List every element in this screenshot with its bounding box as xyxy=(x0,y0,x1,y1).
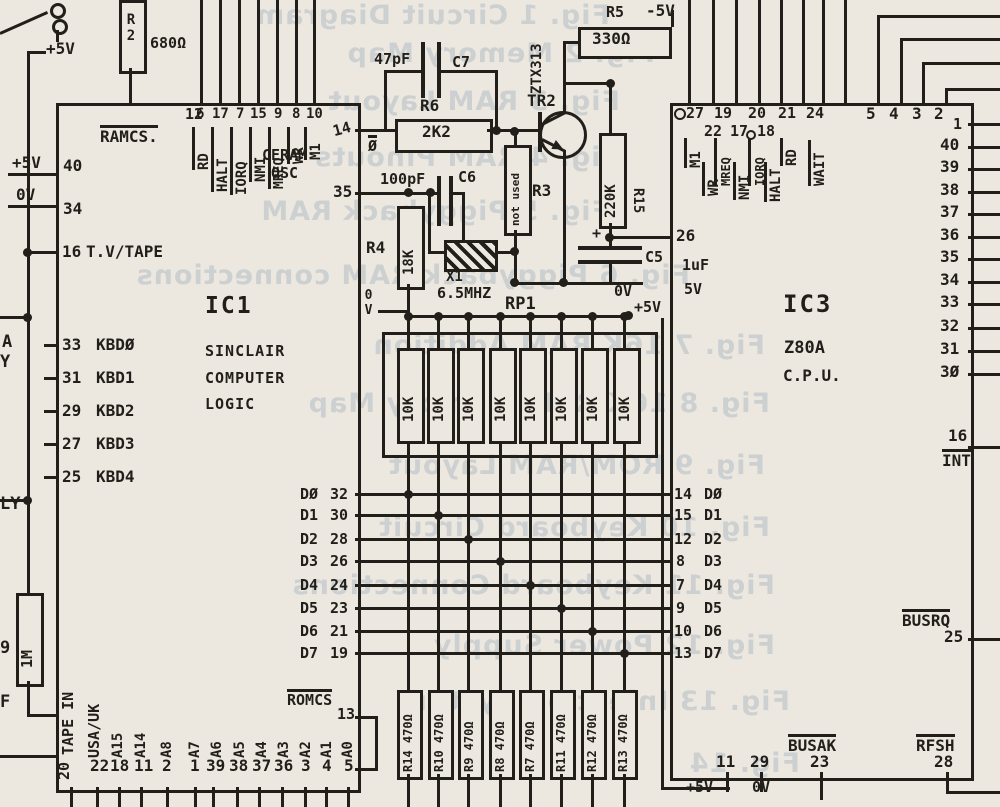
ic3-plus5v: +5V xyxy=(686,780,713,796)
ic1-dbus-label: D2 xyxy=(300,532,318,548)
ic3-dbus-pin: 10 xyxy=(674,624,692,640)
ic1-ceram-label: CERAM xyxy=(262,148,307,164)
pin-stub xyxy=(820,772,823,800)
wire xyxy=(563,150,566,285)
ic1-pin40: 40 xyxy=(63,158,82,175)
crystal-x1 xyxy=(444,240,498,272)
junction-dot xyxy=(464,312,473,321)
ic3-ctrl-pin: 27 xyxy=(686,106,704,122)
pin-tick xyxy=(968,446,1000,449)
ic1-0v: 0V xyxy=(16,187,35,204)
pin-tick xyxy=(968,236,1000,239)
bank-resistor-label: R8 470Ω xyxy=(492,694,508,772)
ic1-addr-pin: 18 xyxy=(110,758,129,775)
c6-label: C6 xyxy=(458,170,476,186)
pin-stub xyxy=(560,774,563,807)
ic1-addr-pin: 11 xyxy=(134,758,153,775)
pin-tick xyxy=(968,213,1000,216)
ic3-dbus-label: D2 xyxy=(704,532,722,548)
pin-stub xyxy=(347,787,350,807)
wire xyxy=(428,192,431,254)
wire xyxy=(355,192,437,195)
rp1-value: 10K xyxy=(431,370,447,422)
wire xyxy=(0,11,48,35)
ic1-pin: 15 xyxy=(250,107,267,122)
pin-stub xyxy=(467,774,470,807)
switch-terminal xyxy=(52,19,68,35)
ic1-usauk-label: USA/UK xyxy=(86,678,102,758)
ic3-pin29: 29 xyxy=(750,754,769,771)
bank-resistor-label: R12 470Ω xyxy=(584,694,600,772)
ic3-pin25: 25 xyxy=(944,629,963,646)
ic1-addr-pin: 36 xyxy=(274,758,293,775)
junction-dot xyxy=(526,312,535,321)
rail-plus5v: +5V xyxy=(634,300,661,316)
wire xyxy=(946,791,1000,794)
ic1-dbus-label: D3 xyxy=(300,554,318,570)
wire xyxy=(8,173,56,176)
bank-resistor-label: R14 470Ω xyxy=(400,694,416,772)
wire xyxy=(355,768,378,771)
ic1-dbus-pin: 19 xyxy=(330,646,348,662)
wire xyxy=(780,0,783,103)
wire xyxy=(27,51,30,593)
ic3-dbus-pin: 8 xyxy=(676,554,685,570)
ic1-dbus-label: DØ xyxy=(300,487,318,503)
wire xyxy=(563,41,578,44)
wire xyxy=(609,236,670,239)
ic3-dbus-label: D4 xyxy=(704,578,722,594)
ic1-pin: 10 xyxy=(306,107,323,122)
dbus-line xyxy=(355,630,670,633)
ic1-kbd-pin: 33 xyxy=(62,337,81,354)
ic3-dbus-label: DØ xyxy=(704,487,722,503)
wire xyxy=(8,205,56,208)
ic1-dbus-pin: 24 xyxy=(330,578,348,594)
ic3-addr-pin: 5 xyxy=(866,106,876,123)
pin-stub xyxy=(258,787,261,807)
rp1-value: 10K xyxy=(461,370,477,422)
c6-value: 100pF xyxy=(380,172,425,188)
ic1-dbus-label: D7 xyxy=(300,646,318,662)
cut-label: F xyxy=(0,694,10,712)
capacitor-plate xyxy=(421,42,425,98)
wire xyxy=(514,230,517,285)
wire xyxy=(822,0,825,103)
pin-stub xyxy=(236,787,239,807)
pin-stub xyxy=(70,787,73,807)
pin-stub xyxy=(96,787,99,807)
ic3-cpu: C.P.U. xyxy=(783,368,841,385)
ic1-dbus-label: D6 xyxy=(300,624,318,640)
wire xyxy=(219,0,222,103)
bank-resistor-label: R11 470Ω xyxy=(553,694,569,772)
c5-voltage: 5V xyxy=(684,282,702,298)
rp1-value: 10K xyxy=(585,370,601,422)
pin-stub xyxy=(591,774,594,807)
pin-tick xyxy=(44,476,56,479)
bank-resistor-label: R7 470Ω xyxy=(522,694,538,772)
junction-dot xyxy=(496,312,505,321)
ic1-tape-pin: 20 xyxy=(56,752,72,780)
wire xyxy=(900,38,1000,41)
pin-tick xyxy=(968,146,1000,149)
ic1-signal-label: RD xyxy=(192,127,212,170)
wire xyxy=(0,316,28,319)
schematic-canvas: Fig. 1 Circuit Diagram Fig. 2 Memory Map… xyxy=(0,0,1000,807)
resistor-r4-label: R4 xyxy=(366,240,385,257)
resistor-r5-label: R5 xyxy=(606,5,624,21)
ic3-addr-pin: 2 xyxy=(934,106,944,123)
ic3-addr-side-pin: 40 xyxy=(940,137,959,154)
x1-value: 6.5MHZ xyxy=(437,286,491,302)
wire xyxy=(758,0,761,103)
ic3-dbus-label: D5 xyxy=(704,601,722,617)
ic1-kbd-label: KBD3 xyxy=(96,436,135,453)
ic1-pin: 9 xyxy=(274,107,282,122)
ic3-ctrl-label: HALT xyxy=(764,162,784,202)
ic1-dbus-pin: 30 xyxy=(330,508,348,524)
ic1-addr-label: A4 xyxy=(254,712,270,758)
junction-dot xyxy=(510,247,519,256)
capacitor-plate xyxy=(578,246,642,250)
wire xyxy=(462,192,465,240)
resistor-r6-value: 2K2 xyxy=(422,124,451,141)
wire xyxy=(900,38,903,103)
ic1-kbd-pin: 29 xyxy=(62,403,81,420)
junction-dot xyxy=(620,312,629,321)
c5-plus: + xyxy=(592,226,601,242)
pin-stub xyxy=(212,787,215,807)
junction-dot xyxy=(588,627,597,636)
ic1-addr-label: A1 xyxy=(319,712,335,758)
junction-dot xyxy=(510,127,519,136)
resistor-r4-value: 18K xyxy=(401,215,417,275)
pin-stub xyxy=(407,774,410,807)
ic3-dbus-pin: 15 xyxy=(674,508,692,524)
ic3-ctrl-pin: 24 xyxy=(806,106,824,122)
dbus-line xyxy=(355,493,670,496)
ic1-dbus-pin: 28 xyxy=(330,532,348,548)
pin-stub xyxy=(726,772,729,792)
ic3-ctrl-pin: 21 xyxy=(778,106,796,122)
c5-value: 1uF xyxy=(682,258,709,274)
bus-column xyxy=(661,318,664,790)
ic3-addr-side-pin: 36 xyxy=(940,227,959,244)
ic1-tvtape-label: T.V/TAPE xyxy=(86,244,163,261)
ic3-dbus-pin: 12 xyxy=(674,532,692,548)
ic1-usa-pin: 22 xyxy=(90,758,109,775)
pin-tick xyxy=(968,373,1000,376)
ic3-ctrl-label: MREQ xyxy=(714,138,734,186)
ic1-addr-pin: 3 xyxy=(301,758,311,775)
tr2-label: TR2 xyxy=(527,93,556,110)
minus5v-label: -5V xyxy=(646,3,675,20)
ic1-addr-label: A8 xyxy=(159,712,175,758)
wire xyxy=(495,70,498,132)
dbus-line xyxy=(355,560,670,563)
rp1-value: 10K xyxy=(554,370,570,422)
capacitor-plate xyxy=(437,176,441,226)
pin-tick xyxy=(968,303,1000,306)
resistor-r15-value: 220K xyxy=(603,140,619,218)
ic3-type: Z80A xyxy=(784,340,825,358)
ic1-signal-label: HALT xyxy=(211,127,231,192)
ic1-addr-label: A15 xyxy=(110,712,126,758)
pin-tick xyxy=(968,191,1000,194)
wire xyxy=(28,251,58,254)
ic1-addr-pin: 37 xyxy=(252,758,271,775)
ic3-0v: 0V xyxy=(752,780,770,796)
ic3-addr-side-pin: 33 xyxy=(940,294,959,311)
cut-label: 9 xyxy=(0,640,10,658)
ic3-addr-side-pin: 31 xyxy=(940,341,959,358)
ic1-kbd-pin: 31 xyxy=(62,370,81,387)
pin-stub xyxy=(281,787,284,807)
rp1-value: 10K xyxy=(523,370,539,422)
switch-terminal xyxy=(50,3,66,19)
ic1-addr-pin: 2 xyxy=(162,758,172,775)
wire xyxy=(563,41,566,113)
pin-tick xyxy=(968,168,1000,171)
ic1-addr-label: A14 xyxy=(133,712,149,758)
ic3-dbus-pin: 9 xyxy=(676,601,685,617)
pin-stub xyxy=(529,774,532,807)
wire xyxy=(384,70,387,130)
ic1-desc: LOGIC xyxy=(205,397,255,413)
ic3-dbus-label: D7 xyxy=(704,646,722,662)
ic1-dbus-pin: 21 xyxy=(330,624,348,640)
ic1-tapein-label: TAPE IN xyxy=(60,663,76,755)
ic1-pin35: 35 xyxy=(333,184,352,201)
junction-dot xyxy=(510,278,519,287)
pin-stub xyxy=(166,787,169,807)
pin-stub xyxy=(623,774,626,807)
wire xyxy=(295,0,298,103)
ic3-addr-side-pin: 35 xyxy=(940,249,959,266)
rp1-value: 10K xyxy=(617,370,633,422)
capacitor-plate xyxy=(449,176,453,226)
wire xyxy=(877,15,880,103)
ic1-addr-pin: 1 xyxy=(190,758,200,775)
dbus-line xyxy=(355,584,670,587)
junction-dot xyxy=(434,312,443,321)
junction-dot xyxy=(526,581,535,590)
ic1-dbus-label: D4 xyxy=(300,578,318,594)
cut-label: Y xyxy=(0,354,10,372)
c7-value: 47pF xyxy=(374,52,410,68)
pin-stub xyxy=(437,774,440,807)
ic1-addr-pin: 5 xyxy=(344,758,354,775)
ic3-dbus-label: D6 xyxy=(704,624,722,640)
ic3-ctrl-label: M1 xyxy=(684,138,704,168)
ic1-dbus-label: D5 xyxy=(300,601,318,617)
pin-tick xyxy=(44,443,56,446)
cut-label: LY xyxy=(0,496,20,514)
ic1-addr-label: A3 xyxy=(276,712,292,758)
wire xyxy=(688,0,691,103)
ic3-addr-pin: 3 xyxy=(912,106,922,123)
ic3-pin11: 11 xyxy=(716,754,735,771)
ic3-ctrl-label: RD xyxy=(780,138,800,166)
wire xyxy=(512,282,643,285)
plus5v-label: +5V xyxy=(46,41,75,58)
bank-resistor-label: R9 470Ω xyxy=(461,694,477,772)
ic3-dbus-pin: 7 xyxy=(676,578,685,594)
c5-label: C5 xyxy=(645,250,663,266)
ic1-ceram-label: OSC xyxy=(271,166,298,182)
cut-label: A xyxy=(2,334,12,352)
ic1-addr-label: A2 xyxy=(298,712,314,758)
junction-dot xyxy=(404,312,413,321)
wire xyxy=(238,0,241,103)
wire xyxy=(922,62,925,103)
junction-dot xyxy=(404,490,413,499)
ic1-signal-label: IORQ xyxy=(230,127,250,195)
dbus-line xyxy=(355,607,670,610)
rp1-value: 10K xyxy=(493,370,509,422)
wire xyxy=(313,0,316,103)
ic1-addr-label: A5 xyxy=(232,712,248,758)
ic1-dbus-label: D1 xyxy=(300,508,318,524)
junction-dot xyxy=(404,188,413,197)
dbus-line xyxy=(355,514,670,517)
wire xyxy=(609,82,612,133)
ic3-dbus-label: D1 xyxy=(704,508,722,524)
pin-stub xyxy=(325,787,328,807)
pin-tick xyxy=(44,377,56,380)
pin-stub xyxy=(194,787,197,807)
wire xyxy=(276,0,279,103)
rp1-value: 10K xyxy=(401,370,417,422)
bank-resistor-label: R13 470Ω xyxy=(615,694,631,772)
wire xyxy=(802,0,805,103)
x1-label: X1 xyxy=(446,270,463,285)
pin-stub xyxy=(118,787,121,807)
ic3-ctrl-pin: 20 xyxy=(748,106,766,122)
ic1-dbus-pin: 32 xyxy=(330,487,348,503)
ic3-dbus-label: D3 xyxy=(704,554,722,570)
ic3-outline xyxy=(670,103,974,781)
ic3-addr-side-pin: 3Ø xyxy=(940,364,959,381)
wire xyxy=(407,284,410,313)
wire xyxy=(735,0,738,103)
ic3-addr-side-pin: 32 xyxy=(940,318,959,335)
resistor-r3-note: not used xyxy=(508,152,524,226)
resistor-r2-label: R2 xyxy=(124,12,138,44)
resistor-r2-value: 680Ω xyxy=(150,36,186,52)
ic3-bubble xyxy=(674,108,686,120)
ic1-kbd-label: KBDØ xyxy=(96,337,135,354)
ic3-pin26: 26 xyxy=(676,228,695,245)
pin-tick xyxy=(968,638,1000,641)
ic3-addr-side-pin: 34 xyxy=(940,272,959,289)
junction-dot xyxy=(620,649,629,658)
ic1-dbus-pin: 26 xyxy=(330,554,348,570)
ic1-dbus-pin: 23 xyxy=(330,601,348,617)
ic3-pin1: 1 xyxy=(953,117,962,133)
wire xyxy=(27,681,30,717)
wire xyxy=(0,755,58,758)
junction-dot xyxy=(464,535,473,544)
pin-tick xyxy=(968,281,1000,284)
ic3-pin23: 23 xyxy=(810,754,829,771)
dbus-line xyxy=(355,538,670,541)
ic1-addr-pin: 4 xyxy=(322,758,332,775)
wire xyxy=(355,129,397,132)
ic3-pin28: 28 xyxy=(934,754,953,771)
wire xyxy=(129,68,132,103)
ic1-pin16: 16 xyxy=(62,244,81,261)
ic1-kbd-label: KBD1 xyxy=(96,370,135,387)
ic3-addr-pin: 4 xyxy=(889,106,899,123)
resistor-r3-label: R3 xyxy=(532,183,551,200)
ic1-kbd-label: KBD4 xyxy=(96,469,135,486)
wire xyxy=(877,15,1000,18)
pin-tick xyxy=(968,123,1000,126)
wire xyxy=(844,0,847,103)
ic1-addr-label: A7 xyxy=(187,712,203,758)
ic3-ctrl-pin: 19 xyxy=(714,106,732,122)
ic3-addr-side-pin: 39 xyxy=(940,159,959,176)
pin-stub xyxy=(499,774,502,807)
bank-resistor-label: R10 470Ω xyxy=(431,694,447,772)
ic1-ramcs-label: RAMCS. xyxy=(100,125,158,146)
resistor-1m-label: 1M xyxy=(19,612,35,668)
resistor-r6-label: R6 xyxy=(420,98,439,115)
ic3-busrq-label: BUSRQ xyxy=(902,609,950,630)
ic1-name: IC1 xyxy=(205,294,253,318)
ic1-pin: 7 xyxy=(236,107,244,122)
ic1-kbd-pin: 25 xyxy=(62,469,81,486)
ic1-kbd-pin: 27 xyxy=(62,436,81,453)
ic1-kbd-label: KBD2 xyxy=(96,403,135,420)
pin-stub xyxy=(304,787,307,807)
ic1-desc: SINCLAIR xyxy=(205,344,285,360)
tr2-type: ZTX313 xyxy=(529,20,545,94)
ic3-addr-side-pin: 38 xyxy=(940,182,959,199)
ic3-dbus-pin: 13 xyxy=(674,646,692,662)
ic3-int-label: INT xyxy=(942,449,971,470)
ic1-pin34: 34 xyxy=(63,201,82,218)
pin-tick xyxy=(44,410,56,413)
junction-dot xyxy=(557,604,566,613)
ic1-pin: 17 xyxy=(212,107,229,122)
ic1-desc: COMPUTER xyxy=(205,371,285,387)
ic1-romcs-label: ROMCS xyxy=(287,689,332,709)
wire xyxy=(375,716,378,771)
wire xyxy=(28,51,46,54)
wire xyxy=(945,88,1000,91)
junction-dot xyxy=(557,312,566,321)
wire xyxy=(257,0,260,103)
pin-stub xyxy=(140,787,143,807)
wire xyxy=(428,251,444,254)
wire xyxy=(712,0,715,103)
resistor-r15-label: R15 xyxy=(630,188,646,228)
ic1-addr-label: A6 xyxy=(209,712,225,758)
ic1-pin: 6 xyxy=(196,107,204,122)
ic3-ctrl-label: WAIT xyxy=(808,140,828,186)
wire xyxy=(27,714,58,717)
ic3-dbus-pin: 14 xyxy=(674,487,692,503)
wire xyxy=(922,62,1000,65)
junction-dot xyxy=(496,557,505,566)
ic1-romcs-pin: 13 xyxy=(337,707,355,723)
c5-0v: 0V xyxy=(614,284,632,300)
phase-label: Ø xyxy=(368,135,377,155)
ic1-pin: 8 xyxy=(292,107,300,122)
